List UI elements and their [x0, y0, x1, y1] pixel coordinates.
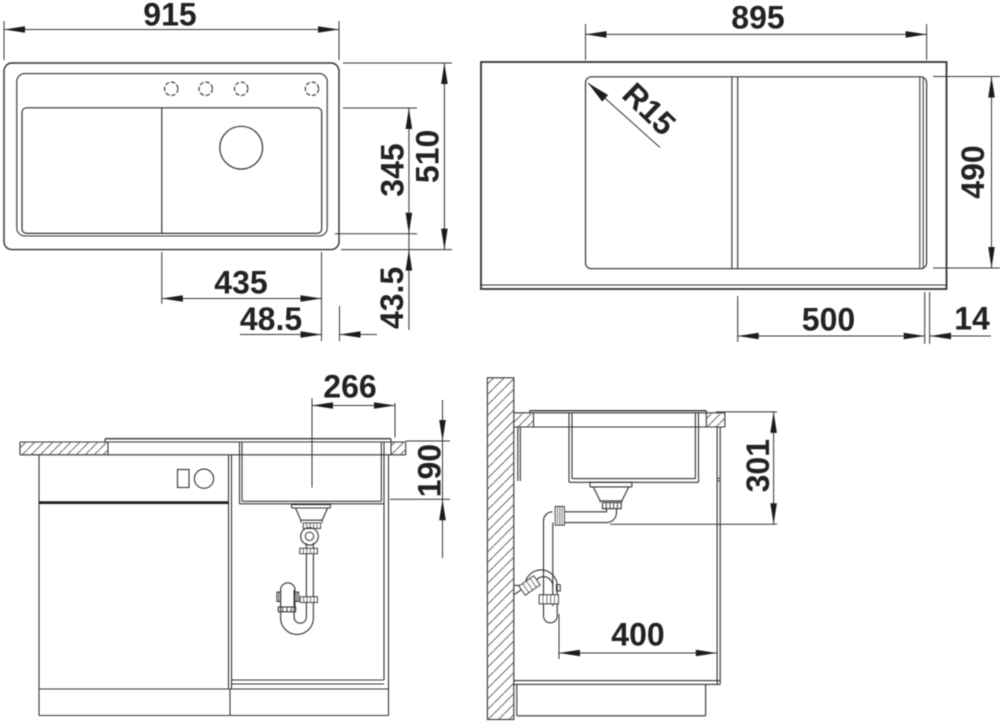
svg-text:915: 915: [143, 0, 196, 33]
svg-text:895: 895: [731, 0, 784, 36]
svg-text:14: 14: [954, 301, 990, 337]
svg-text:43.5: 43.5: [374, 267, 410, 329]
svg-text:345: 345: [375, 143, 411, 196]
svg-text:48.5: 48.5: [240, 301, 302, 337]
svg-text:490: 490: [955, 145, 991, 198]
svg-text:500: 500: [802, 302, 855, 338]
svg-text:400: 400: [611, 617, 664, 653]
svg-text:510: 510: [410, 130, 446, 183]
svg-text:301: 301: [740, 439, 776, 492]
svg-text:435: 435: [214, 265, 267, 301]
svg-text:266: 266: [323, 369, 376, 405]
